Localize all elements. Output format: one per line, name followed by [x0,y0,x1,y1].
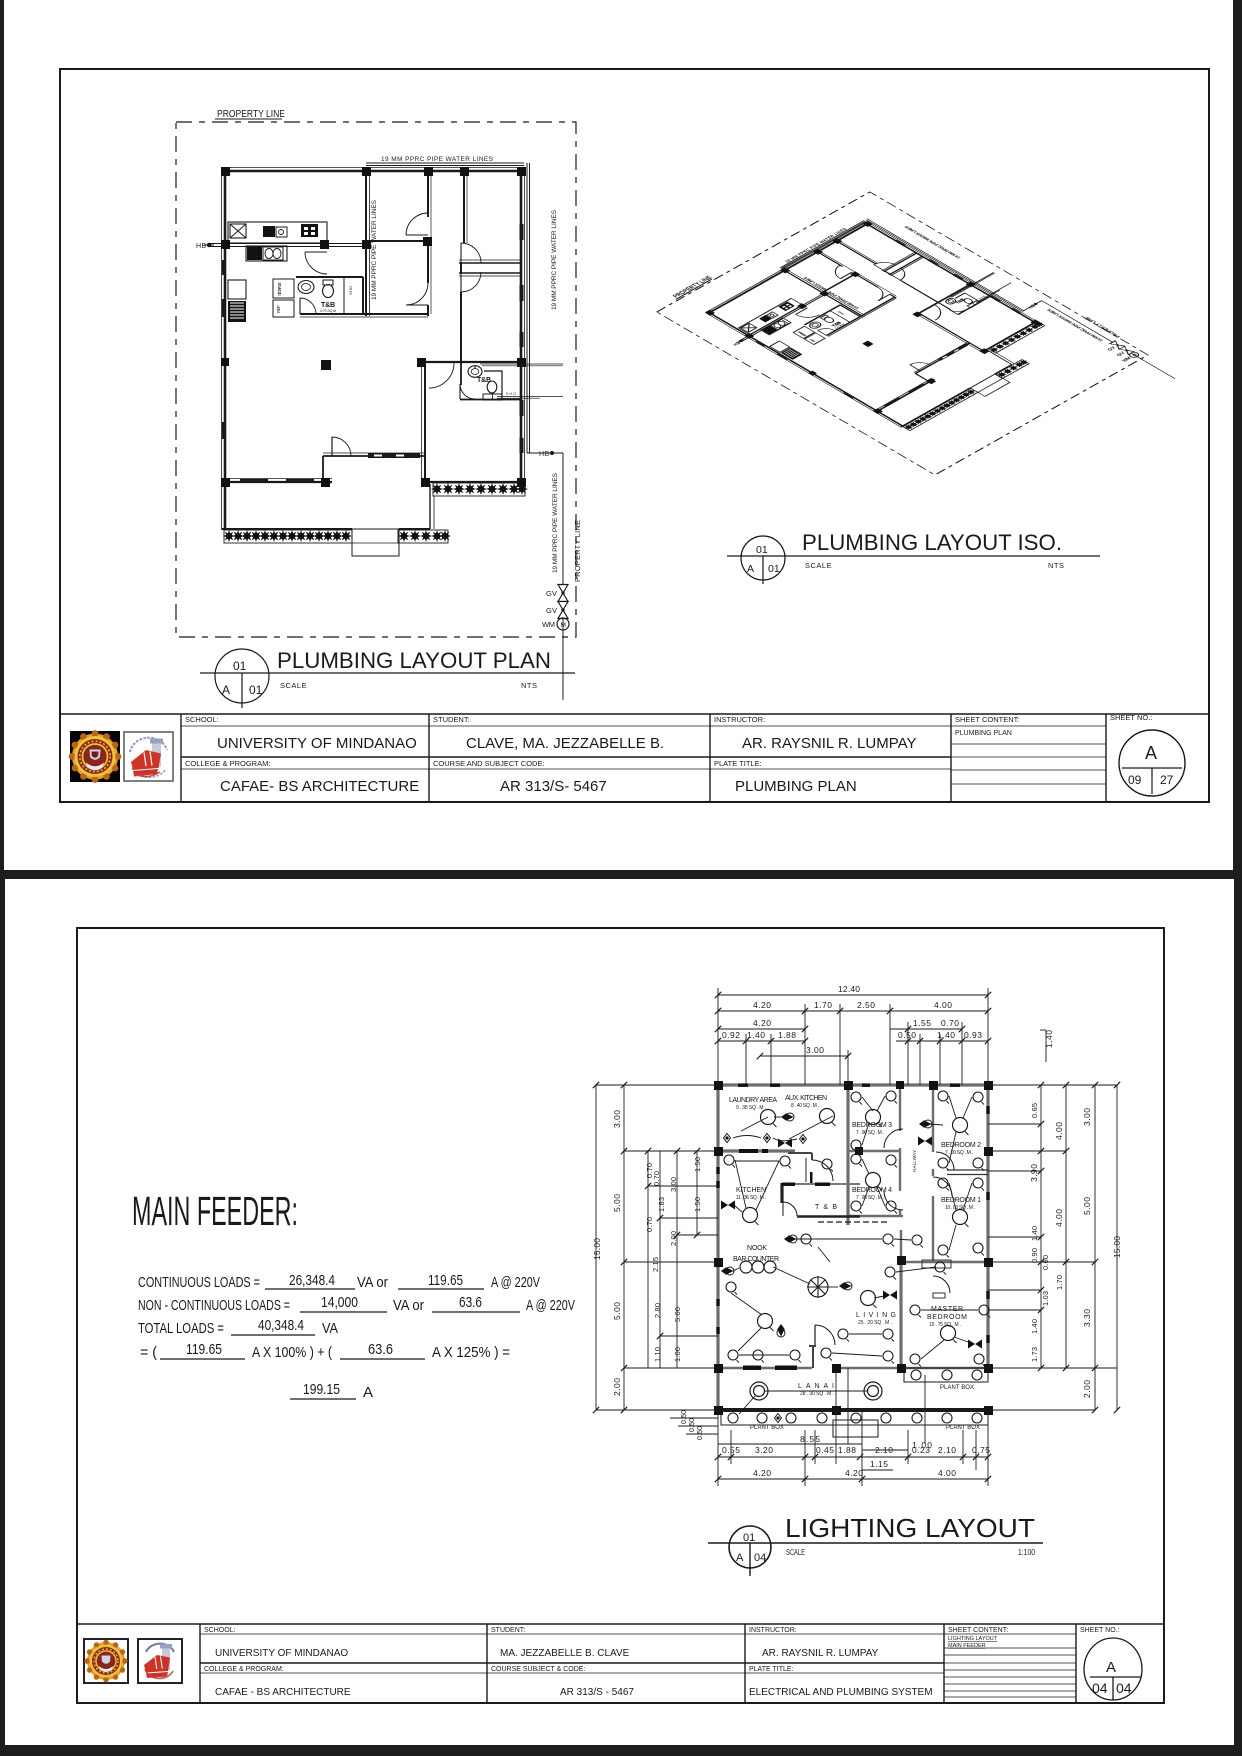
svg-text:4.20: 4.20 [753,1000,771,1010]
svg-text:INSTRUCTOR:: INSTRUCTOR: [749,1627,797,1634]
svg-text:SHEET NO.:: SHEET NO.: [1080,1627,1120,1634]
svg-text:1.40: 1.40 [747,1030,765,1040]
svg-text:NTS: NTS [1048,561,1065,570]
svg-text:4.20: 4.20 [753,1468,771,1478]
svg-text:PLANT BOX: PLANT BOX [940,1385,974,1391]
svg-text:4.00: 4.00 [938,1468,956,1478]
svg-text:4.00: 4.00 [934,1000,952,1010]
svg-text:CONTINUOUS LOADS =: CONTINUOUS LOADS = [138,1274,260,1291]
svg-text:LIVING: LIVING [856,1312,898,1319]
svg-text:TOTAL LOADS =: TOTAL LOADS = [138,1320,224,1337]
svg-text:01: 01 [743,1532,755,1544]
svg-text:COLLEGE & PROGRAM:: COLLEGE & PROGRAM: [204,1666,284,1673]
svg-text:3.90: 3.90 [1029,1164,1039,1182]
svg-text:AR. RAYSNIL R. LUMPAY: AR. RAYSNIL R. LUMPAY [762,1648,879,1659]
svg-text:15.00: 15.00 [592,1238,602,1260]
svg-text:0.23: 0.23 [912,1445,930,1455]
svg-text:BEDROOM 4: BEDROOM 4 [852,1187,892,1194]
svg-text:7 . 90 SQ . M .: 7 . 90 SQ . M . [856,1195,884,1201]
svg-text:PLANT BOX: PLANT BOX [750,1425,784,1431]
svg-text:SCALE: SCALE [805,561,832,570]
svg-text:1.70: 1.70 [1055,1275,1064,1290]
svg-text:2.15: 2.15 [651,1257,660,1272]
svg-text:CAFAE - BS ARCHITECTURE: CAFAE - BS ARCHITECTURE [215,1687,351,1698]
svg-text:COLLEGE & PROGRAM:: COLLEGE & PROGRAM: [185,759,270,768]
svg-text:27: 27 [1160,773,1174,787]
svg-text:KITCHEN: KITCHEN [736,1187,766,1194]
svg-text:3.00: 3.00 [612,1110,622,1128]
svg-text:2.00: 2.00 [669,1231,678,1246]
svg-text:26,348.4: 26,348.4 [289,1272,335,1289]
svg-text:BEDROOM 1: BEDROOM 1 [941,1197,981,1204]
svg-text:A: A [736,1552,744,1564]
svg-text:A: A [363,1384,373,1401]
svg-text:NON - CONTINUOUS LOADS =: NON - CONTINUOUS LOADS = [138,1297,290,1314]
svg-text:SHEET CONTENT:: SHEET CONTENT: [955,715,1019,724]
svg-text:VA or: VA or [393,1297,424,1314]
svg-text:CLAVE, MA. JEZZABELLE B.: CLAVE, MA. JEZZABELLE B. [466,735,664,752]
svg-text:04: 04 [1092,1680,1108,1696]
svg-text:U: U [93,752,97,758]
svg-text:1:100: 1:100 [1018,1548,1035,1557]
svg-text:1.88: 1.88 [838,1445,856,1455]
svg-text:SCHOOL:: SCHOOL: [204,1627,236,1634]
svg-text:14,000: 14,000 [321,1294,358,1311]
svg-text:0.50: 0.50 [898,1030,916,1040]
svg-text:PLUMBING PLAN: PLUMBING PLAN [955,730,1012,737]
svg-text:2.50: 2.50 [857,1000,875,1010]
svg-text:3.00: 3.00 [806,1045,824,1055]
svg-text:28 . 30 SQ . M .: 28 . 30 SQ . M . [800,1391,834,1397]
svg-text:04: 04 [754,1552,766,1564]
svg-text:PLUMBING LAYOUT ISO.: PLUMBING LAYOUT ISO. [802,530,1062,555]
svg-text:2.80: 2.80 [653,1303,662,1318]
svg-text:PLUMBING PLAN: PLUMBING PLAN [735,778,857,795]
svg-text:2.00: 2.00 [612,1378,622,1396]
svg-text:1.40: 1.40 [1030,1226,1039,1241]
svg-text:COURSE AND SUBJECT CODE:: COURSE AND SUBJECT CODE: [433,759,545,768]
svg-text:INSTRUCTOR:: INSTRUCTOR: [714,715,765,724]
svg-text:1.50: 1.50 [693,1157,702,1172]
svg-text:MAIN FEEDER: MAIN FEEDER [948,1643,986,1649]
svg-text:AUX. KITCHEN: AUX. KITCHEN [785,1095,827,1102]
svg-text:3.00: 3.00 [1082,1108,1092,1126]
svg-text:SHEET NO.:: SHEET NO.: [1110,713,1152,722]
svg-text:0.50: 0.50 [681,1410,688,1424]
svg-text:63.6: 63.6 [459,1294,482,1311]
svg-text:VA: VA [322,1320,338,1337]
svg-text:0.70: 0.70 [652,1171,661,1186]
svg-text:ELECTRICAL AND PLUMBING SYSTE: ELECTRICAL AND PLUMBING SYSTEM [749,1687,933,1698]
svg-text:SCALE: SCALE [786,1548,805,1557]
svg-text:4.20: 4.20 [753,1018,771,1028]
svg-text:25 . 20 SQ . M .: 25 . 20 SQ . M . [858,1320,892,1326]
svg-text:AR 313/S - 5467: AR 313/S - 5467 [560,1687,634,1698]
svg-text:4.00: 4.00 [1054,1122,1064,1140]
svg-text:8.55: 8.55 [800,1434,820,1444]
svg-text:0.45: 0.45 [816,1445,834,1455]
svg-text:LIGHTING LAYOUT: LIGHTING LAYOUT [785,1513,1035,1543]
svg-text:MA. JEZZABELLE B. CLAVE: MA. JEZZABELLE B. CLAVE [500,1648,630,1659]
svg-text:NTS: NTS [521,681,538,690]
svg-text:01: 01 [233,659,247,673]
svg-text:NOOK: NOOK [747,1245,767,1252]
svg-text:1.40: 1.40 [1044,1030,1054,1048]
svg-text:119.65: 119.65 [428,1272,463,1289]
svg-text:3.30: 3.30 [1082,1309,1092,1327]
svg-text:1.83: 1.83 [657,1197,666,1212]
svg-text:A: A [1145,743,1157,763]
svg-text:T & B: T & B [815,1204,837,1211]
svg-text:1.55: 1.55 [913,1018,931,1028]
svg-text:MASTER: MASTER [931,1306,963,1313]
svg-text:BEDROOM: BEDROOM [927,1314,967,1321]
svg-text:09: 09 [1128,773,1142,787]
svg-text:BEDROOM 2: BEDROOM 2 [941,1142,981,1149]
svg-text:5.00: 5.00 [612,1194,622,1212]
svg-text:0.90: 0.90 [1030,1248,1039,1263]
svg-text:SHEET CONTENT:: SHEET CONTENT: [948,1627,1008,1634]
svg-text:119.65: 119.65 [186,1341,222,1358]
svg-text:04: 04 [1116,1680,1132,1696]
svg-text:01: 01 [249,683,263,697]
svg-text:1.50: 1.50 [693,1197,702,1212]
svg-text:1.00: 1.00 [673,1347,682,1362]
svg-text:0.70: 0.70 [941,1018,959,1028]
svg-text:0.50: 0.50 [697,1426,704,1440]
svg-text:1.88: 1.88 [778,1030,796,1040]
svg-text:PLATE TITLE:: PLATE TITLE: [714,759,762,768]
svg-text:AR. RAYSNIL R. LUMPAY: AR. RAYSNIL R. LUMPAY [742,735,917,752]
svg-text:0.75: 0.75 [972,1445,990,1455]
svg-text:0.50: 0.50 [689,1418,696,1432]
svg-text:1.40: 1.40 [1030,1319,1039,1334]
svg-text:MAIN FEEDER:: MAIN FEEDER: [132,1188,298,1234]
svg-text:7 . 90 SQ . M .: 7 . 90 SQ . M . [856,1130,884,1136]
svg-text:3.20: 3.20 [755,1445,773,1455]
svg-text:01: 01 [756,544,768,556]
svg-text:0.60: 0.60 [1041,1255,1050,1270]
svg-text:15.00: 15.00 [1112,1236,1122,1258]
svg-text:STUDENT:: STUDENT: [433,715,470,724]
svg-text:A: A [222,683,230,697]
svg-text:5.00: 5.00 [1082,1197,1092,1215]
svg-text:LANAI: LANAI [798,1383,836,1390]
svg-text:199.15: 199.15 [303,1381,340,1398]
svg-text:PLUMBING LAYOUT PLAN: PLUMBING LAYOUT PLAN [277,648,551,673]
svg-text:HALLWAY: HALLWAY [912,1150,917,1172]
svg-text:A X 100% ) + (: A X 100% ) + ( [252,1344,332,1361]
svg-text:9 . 38 SQ . M .: 9 . 38 SQ . M . [736,1105,766,1111]
svg-text:UNIVERSITY OF MINDANAO: UNIVERSITY OF MINDANAO [215,1648,348,1659]
svg-text:COURSE SUBJECT & CODE:: COURSE SUBJECT & CODE: [491,1666,585,1673]
svg-text:0.70: 0.70 [645,1217,654,1232]
svg-text:2.00: 2.00 [1082,1380,1092,1398]
svg-text:63.6: 63.6 [368,1341,393,1358]
svg-text:CAFAE- BS ARCHITECTURE: CAFAE- BS ARCHITECTURE [220,778,419,795]
svg-text:3.00: 3.00 [669,1177,678,1192]
svg-text:4.00: 4.00 [1054,1209,1064,1227]
svg-text:01: 01 [768,563,780,575]
svg-text:1.03: 1.03 [1041,1291,1050,1306]
svg-text:LAUNDRY AREA: LAUNDRY AREA [729,1097,777,1104]
svg-text:LIGHTING LAYOUT: LIGHTING LAYOUT [948,1636,998,1642]
svg-text:0.93: 0.93 [964,1030,982,1040]
svg-text:1.73: 1.73 [1030,1347,1039,1362]
svg-text:BEDROOM 3: BEDROOM 3 [852,1122,892,1129]
svg-text:12.40: 12.40 [838,984,860,994]
svg-text:5.00: 5.00 [612,1302,622,1320]
svg-text:= (: = ( [140,1344,157,1361]
svg-text:7 . 00 SQ . M .: 7 . 00 SQ . M . [945,1150,973,1156]
svg-text:PLATE TITLE:: PLATE TITLE: [749,1666,794,1673]
svg-text:AR 313/S- 5467: AR 313/S- 5467 [500,778,607,795]
svg-text:2.10: 2.10 [938,1445,956,1455]
svg-text:STUDENT:: STUDENT: [491,1627,525,1634]
svg-text:1.70: 1.70 [814,1000,832,1010]
svg-text:4.20: 4.20 [845,1468,863,1478]
svg-text:0.55: 0.55 [722,1445,740,1455]
svg-text:UNIVERSITY OF MINDANAO: UNIVERSITY OF MINDANAO [217,735,417,752]
svg-text:A X 125% ) =: A X 125% ) = [432,1344,510,1361]
svg-text:A @ 220V: A @ 220V [491,1274,540,1291]
svg-text:40,348.4: 40,348.4 [258,1317,304,1334]
svg-text:0.92: 0.92 [722,1030,740,1040]
svg-text:1.15: 1.15 [870,1459,888,1469]
svg-text:SCALE: SCALE [280,681,307,690]
svg-text:A @ 220V: A @ 220V [526,1297,575,1314]
svg-text:VA or: VA or [357,1274,388,1291]
svg-text:8 . 40 SQ . M .: 8 . 40 SQ . M . [791,1103,819,1109]
svg-text:1.10: 1.10 [653,1347,662,1362]
svg-text:2.10: 2.10 [875,1445,893,1455]
svg-text:A: A [1106,1659,1116,1676]
svg-text:0.65: 0.65 [1030,1103,1039,1118]
svg-text:1.40: 1.40 [937,1030,955,1040]
svg-text:5.00: 5.00 [673,1307,682,1322]
svg-text:15 . 75 SQ . M .: 15 . 75 SQ . M . [929,1322,961,1328]
svg-text:SCHOOL:: SCHOOL: [185,715,219,724]
svg-text:A: A [747,563,754,575]
